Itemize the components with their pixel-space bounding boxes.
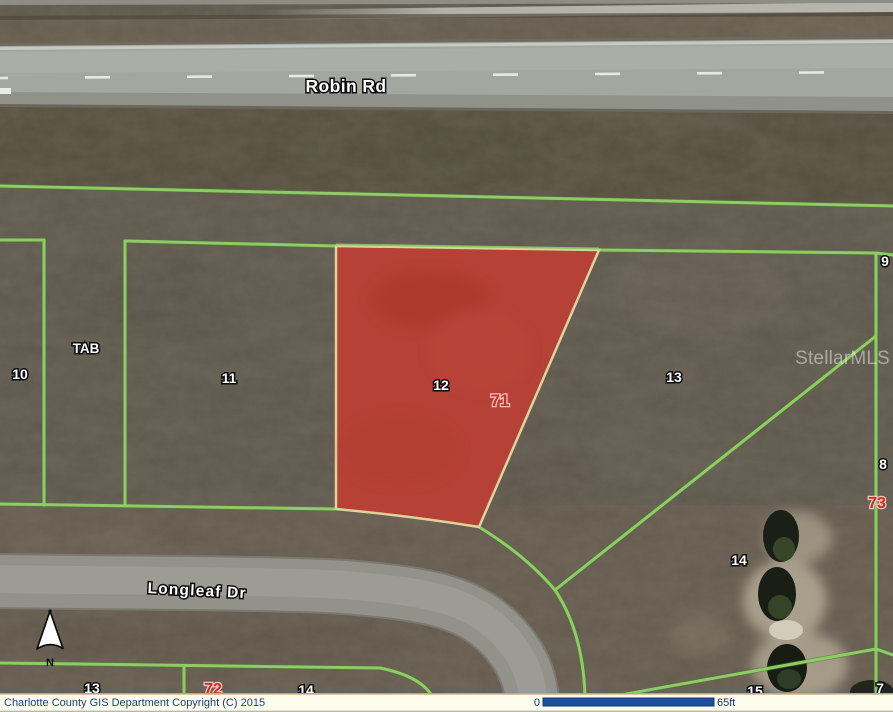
svg-text:65ft: 65ft bbox=[717, 697, 735, 709]
svg-text:TAB: TAB bbox=[73, 341, 100, 356]
svg-text:StellarMLS: StellarMLS bbox=[795, 348, 890, 369]
svg-text:0: 0 bbox=[534, 697, 540, 709]
svg-text:9: 9 bbox=[881, 253, 889, 269]
svg-text:12: 12 bbox=[433, 377, 449, 393]
svg-text:71: 71 bbox=[491, 391, 510, 410]
svg-text:10: 10 bbox=[12, 366, 28, 382]
svg-text:N: N bbox=[46, 657, 54, 669]
svg-text:73: 73 bbox=[868, 495, 886, 512]
svg-text:Robin Rd: Robin Rd bbox=[306, 76, 387, 96]
svg-text:14: 14 bbox=[731, 552, 747, 568]
svg-text:Charlotte County GIS Departmen: Charlotte County GIS Department Copyrigh… bbox=[4, 697, 265, 709]
svg-text:13: 13 bbox=[666, 369, 682, 385]
svg-text:11: 11 bbox=[222, 370, 237, 386]
svg-text:8: 8 bbox=[879, 456, 887, 472]
